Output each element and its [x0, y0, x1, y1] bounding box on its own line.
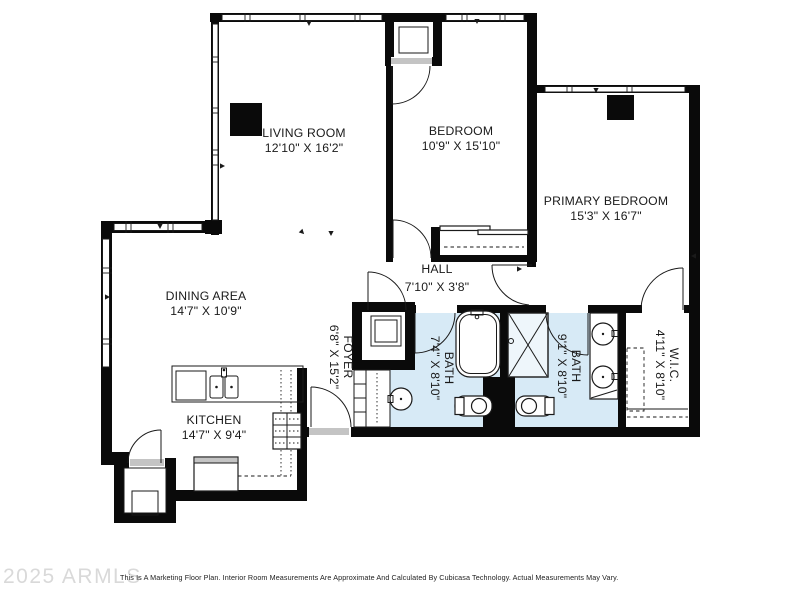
room-name: BATH [442, 352, 456, 384]
primary-top-window [545, 87, 685, 93]
room-name: W.I.C. [667, 348, 681, 382]
primary-bedroom-door [492, 265, 532, 305]
room-label-dining: DINING AREA 14'7" X 10'9" [166, 289, 247, 318]
room-name: BEDROOM [429, 124, 493, 138]
bedroom-closet-door [392, 66, 430, 104]
room-dims: 15'3" X 16'7" [570, 209, 641, 223]
room-name: FOYER [341, 336, 355, 379]
counter-cabinet [176, 371, 206, 400]
dining-left-window [103, 239, 110, 367]
room-dims: 12'10" X 16'2" [265, 141, 343, 155]
closet-door-sill [391, 58, 432, 64]
primary-fireplace [607, 95, 634, 120]
room-label-kitchen: KITCHEN 14'7" X 9'4" [182, 413, 247, 442]
entry-door [311, 387, 351, 427]
room-label-wic: W.I.C. 4'11" X 8'10" [653, 330, 681, 401]
alcove-door-sill [130, 459, 164, 466]
room-name: PRIMARY BEDROOM [544, 194, 668, 208]
room-name: DINING AREA [166, 289, 247, 303]
footer: 2025 ARMLS This Is A Marketing Floor Pla… [3, 565, 618, 588]
floor-plan-canvas: LIVING ROOM 12'10" X 16'2" BEDROOM 10'9"… [0, 0, 800, 600]
room-dims: 9'1" X 8'10" [555, 334, 569, 399]
bedroom-closet-slider [478, 230, 528, 235]
room-name: LIVING ROOM [262, 126, 345, 140]
room-dims: 7'4" X 8'10" [428, 336, 442, 401]
kitchen-island [194, 457, 238, 491]
living-top-window [222, 15, 382, 21]
room-dims: 6'8" X 15'2" [327, 325, 341, 390]
room-name: BATH [569, 350, 583, 382]
room-label-bedroom: BEDROOM 10'9" X 15'10" [422, 124, 500, 153]
kitchen-sink [210, 368, 238, 398]
toilet-bath2 [516, 396, 554, 416]
stove [273, 413, 301, 449]
room-label-hall: HALL 7'10" X 3'8" [405, 262, 470, 294]
room-dims: 14'7" X 9'4" [182, 428, 247, 442]
room-label-living: LIVING ROOM 12'10" X 16'2" [262, 126, 345, 155]
entry-door-sill [309, 428, 349, 435]
vanity-double-sink [590, 313, 618, 399]
living-left-window [213, 24, 219, 220]
disclaimer-text: This Is A Marketing Floor Plan. Interior… [120, 573, 618, 582]
living-fireplace [230, 103, 262, 136]
floor-plan-page: LIVING ROOM 12'10" X 16'2" BEDROOM 10'9"… [0, 0, 800, 600]
room-dims: 10'9" X 15'10" [422, 139, 500, 153]
room-label-primary: PRIMARY BEDROOM 15'3" X 16'7" [544, 194, 668, 223]
room-dims: 7'10" X 3'8" [405, 280, 470, 294]
washer-closet [124, 468, 166, 515]
room-name: KITCHEN [187, 413, 242, 427]
room-label-foyer: FOYER 6'8" X 15'2" [327, 325, 355, 390]
room-dims: 4'11" X 8'10" [653, 330, 667, 401]
bedroom-top-window [446, 15, 524, 21]
toilet-bath1 [455, 396, 492, 416]
bedroom-door [393, 220, 431, 258]
wic-door [641, 268, 683, 310]
bathtub [456, 311, 500, 377]
room-name: HALL [421, 262, 452, 276]
wic-organizer [627, 348, 644, 411]
room-dims: 14'7" X 10'9" [170, 304, 241, 318]
